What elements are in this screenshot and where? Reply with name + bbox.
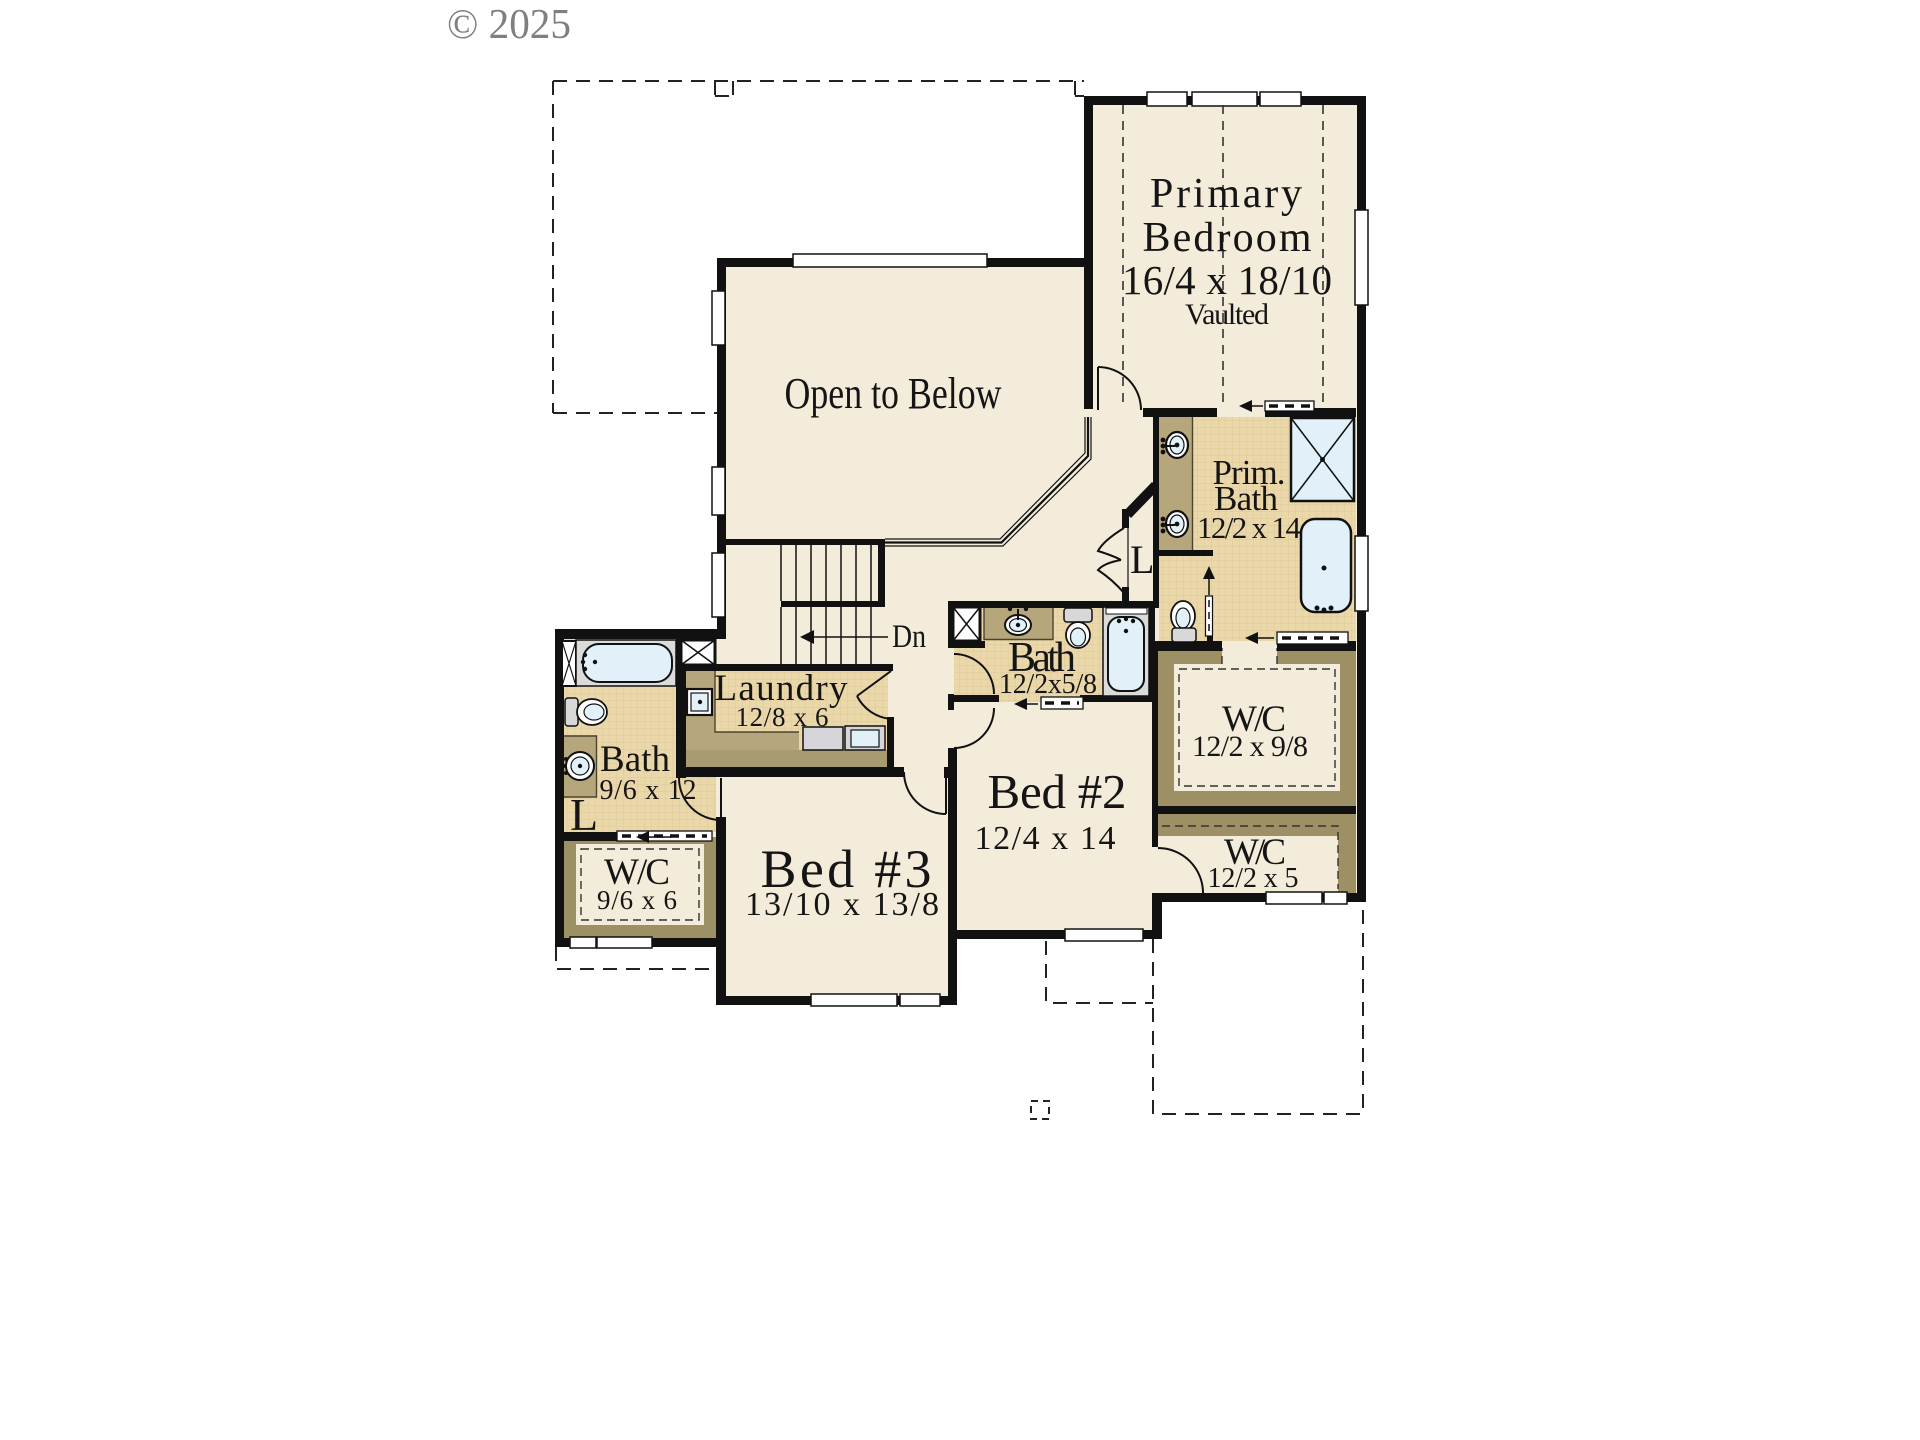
- svg-text:16/4 x 18/10: 16/4 x 18/10: [1122, 257, 1332, 303]
- svg-text:12/2 x 14: 12/2 x 14: [1197, 510, 1302, 545]
- svg-text:12/2 x 9/8: 12/2 x 9/8: [1192, 730, 1308, 763]
- svg-text:Open to Below: Open to Below: [785, 369, 1002, 418]
- svg-text:L: L: [570, 789, 598, 840]
- svg-text:Bedroom: Bedroom: [1143, 215, 1312, 261]
- svg-text:Bath: Bath: [600, 739, 671, 780]
- svg-text:L: L: [1130, 537, 1154, 582]
- svg-text:9/6 x 6: 9/6 x 6: [597, 885, 677, 915]
- svg-text:9/6 x 12: 9/6 x 12: [600, 775, 697, 806]
- svg-text:Dn: Dn: [892, 619, 926, 655]
- svg-text:12/2x5/8: 12/2x5/8: [999, 669, 1097, 700]
- svg-text:12/2 x 5: 12/2 x 5: [1208, 863, 1299, 894]
- svg-text:12/8 x 6: 12/8 x 6: [736, 702, 829, 732]
- svg-text:Bed #2: Bed #2: [988, 764, 1127, 819]
- svg-text:Vaulted: Vaulted: [1185, 298, 1269, 331]
- svg-text:12/4 x 14: 12/4 x 14: [975, 820, 1116, 857]
- svg-text:© 2025: © 2025: [447, 2, 571, 48]
